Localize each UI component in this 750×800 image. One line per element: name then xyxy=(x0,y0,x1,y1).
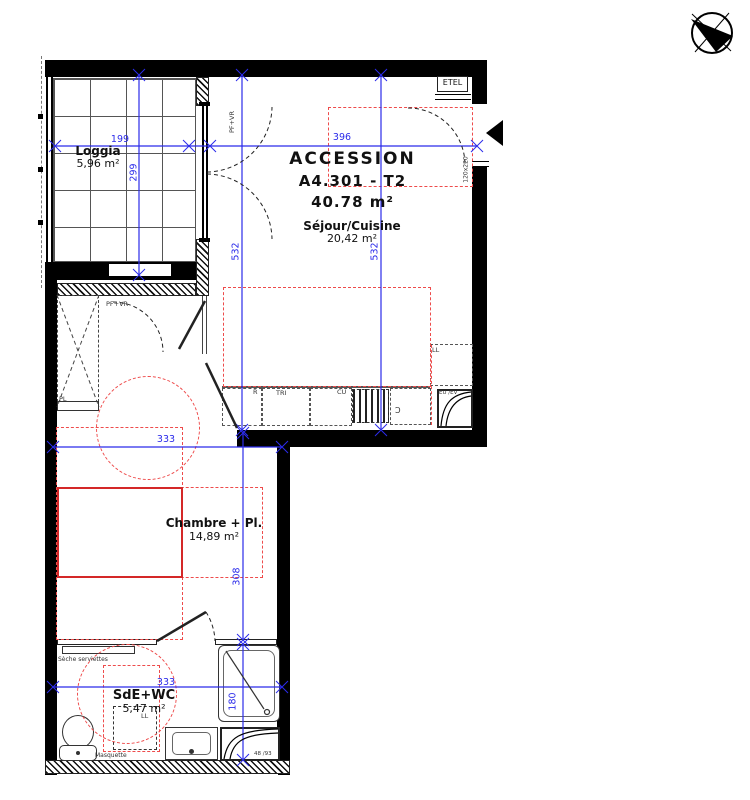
north-arrow-icon xyxy=(691,13,733,53)
door-jamb xyxy=(199,238,210,242)
wall-segment xyxy=(45,60,487,77)
door-jamb xyxy=(199,102,210,106)
loggia-tile-floor xyxy=(53,78,196,262)
dim-chambre-width: 333 xyxy=(141,434,191,445)
duct-kitchen-label: EU /EV xyxy=(439,390,457,396)
sejour-area: 20,42 m² xyxy=(297,232,407,245)
duct-sde-label: 48 /93 xyxy=(254,751,272,757)
vanity-tap xyxy=(189,749,194,754)
fridge-label: R xyxy=(253,388,258,396)
loggia-area: 5,96 m² xyxy=(68,157,128,170)
waste-sorting-label: TRI xyxy=(276,389,286,397)
towel-dryer-label: Sèche serviettes xyxy=(58,656,108,663)
wall-segment xyxy=(472,75,487,104)
sejour-name: Séjour/Cuisine xyxy=(297,219,407,233)
loggia-railing xyxy=(46,60,53,278)
hatched-wall xyxy=(45,760,290,774)
property-limit-line xyxy=(41,56,42,288)
placard-box xyxy=(57,295,99,407)
title-program: ACCESSION xyxy=(275,149,430,169)
title-area: 40.78 m² xyxy=(275,193,430,211)
chambre-area: 14,89 m² xyxy=(164,530,264,543)
living-zone xyxy=(223,287,431,387)
etel-label: ETEL xyxy=(437,78,468,87)
dim-sejour-height-left: 532 xyxy=(231,234,242,270)
chambre-name: Chambre + Pl. xyxy=(164,516,264,530)
dim-sde-height: 180 xyxy=(228,684,239,720)
dim-sde-width: 333 xyxy=(141,677,191,688)
loggia-name: Loggia xyxy=(68,144,128,158)
cooktop-label: CU xyxy=(337,388,346,396)
dim-loggia-width: 199 xyxy=(95,134,145,145)
entry-door-jamb xyxy=(472,161,489,167)
pf-vr-door-label: PF+VR xyxy=(228,104,236,140)
limit-marker xyxy=(38,114,43,119)
door-size-label: 120x220 xyxy=(463,150,470,190)
sde-name: SdE+WC xyxy=(104,688,184,703)
dim-sejour-width: 396 xyxy=(317,132,367,143)
partition-stub xyxy=(202,296,207,354)
masquette-label: Masquette xyxy=(95,752,127,759)
wc-button xyxy=(76,751,80,755)
pf-vr-window-label: PF+VR xyxy=(106,300,128,308)
limit-marker xyxy=(38,220,43,225)
dim-sejour-height-right: 532 xyxy=(370,234,381,270)
etel-front xyxy=(435,94,471,100)
placard-label: PL xyxy=(59,395,67,403)
washer-kitchen-label: LL xyxy=(432,346,439,354)
dim-chambre-height: 308 xyxy=(232,559,243,595)
washer-sde-label: LL xyxy=(141,712,148,720)
tap-symbol: Ɔ xyxy=(395,406,401,415)
hatched-wall xyxy=(196,239,209,296)
dim-loggia-height: 299 xyxy=(129,155,140,191)
limit-marker xyxy=(38,167,43,172)
loggia-window-opening xyxy=(108,263,172,277)
loggia-french-door xyxy=(202,104,208,240)
entrance-arrow xyxy=(486,120,503,146)
wall-segment xyxy=(472,166,487,447)
floor-plan: Loggia 5,96 m² ACCESSION A4.301 - T2 40.… xyxy=(0,0,750,800)
cooktop-box xyxy=(352,389,389,423)
wall-segment xyxy=(237,430,487,447)
title-lot: A4.301 - T2 xyxy=(275,172,430,190)
turning-circle-hall xyxy=(96,376,200,480)
red-guide-line xyxy=(431,345,432,425)
